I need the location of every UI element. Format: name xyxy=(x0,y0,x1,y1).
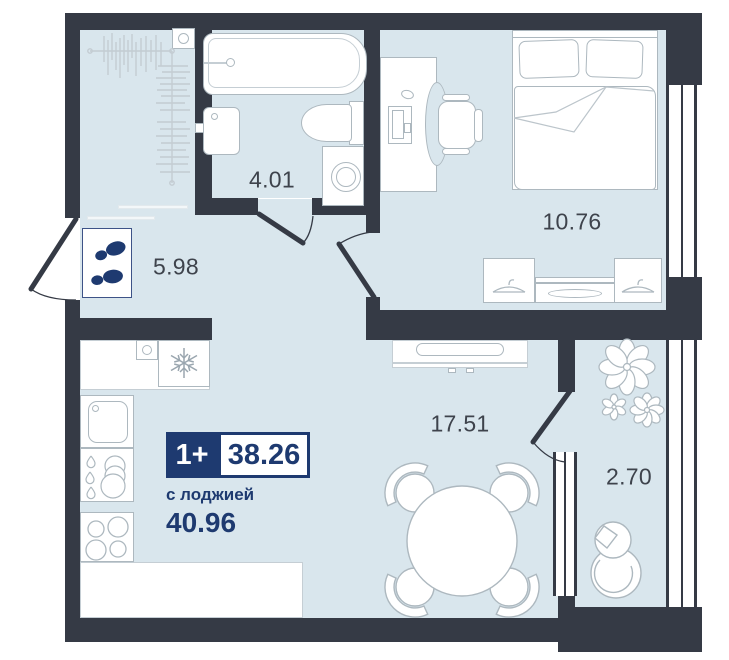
main-area-value: 38.26 xyxy=(218,432,310,478)
toilet-bowl xyxy=(301,104,352,142)
light-fixture xyxy=(172,28,195,49)
bathroom-sink xyxy=(203,107,240,155)
light-fixture-lamp xyxy=(178,33,189,44)
area-badge: 1+ 38.26 с лоджией 40.96 xyxy=(166,432,310,539)
washing-machine-door xyxy=(336,167,356,187)
washing-machine xyxy=(322,146,364,206)
bathtub xyxy=(203,33,367,95)
light-fixture xyxy=(136,340,158,360)
kitchen-counter-bottom xyxy=(80,562,303,618)
light-fixture-lamp xyxy=(142,345,152,355)
wall xyxy=(65,13,702,30)
bathtub-faucet xyxy=(226,58,235,67)
shoe-mat xyxy=(82,228,132,298)
bed-blanket xyxy=(514,86,656,190)
bedroom-window xyxy=(666,85,697,277)
bed-pillow xyxy=(585,39,643,79)
bathroom-door-opening xyxy=(258,199,312,215)
tv-stand-foot xyxy=(448,368,456,373)
desk-monitor-screen xyxy=(392,110,404,139)
entrance-door xyxy=(31,219,76,300)
tv-stand-line xyxy=(393,362,527,364)
wardrobe xyxy=(483,258,535,303)
kitchen-sink-unit xyxy=(80,395,134,448)
total-area-value: 40.96 xyxy=(166,507,310,539)
office-chair-armrest xyxy=(442,148,470,155)
dresser xyxy=(535,277,615,303)
closet-shelf xyxy=(118,205,188,209)
wall xyxy=(366,310,702,340)
room-label-bedroom: 10.76 xyxy=(542,209,601,236)
office-chair-seat xyxy=(438,101,476,149)
wall xyxy=(65,300,80,642)
wall xyxy=(65,318,212,340)
living-balcony-window xyxy=(553,452,577,596)
wall xyxy=(195,198,258,215)
wall xyxy=(65,13,80,218)
wardrobe xyxy=(614,258,662,303)
dishwasher xyxy=(80,448,134,502)
wall xyxy=(666,277,702,310)
wall xyxy=(558,596,575,618)
closet-shelf xyxy=(87,216,155,220)
fridge xyxy=(158,340,210,387)
wall xyxy=(666,30,702,85)
window-pane-divider xyxy=(564,452,566,596)
room-label-hallway: 5.98 xyxy=(153,254,199,281)
office-chair-back xyxy=(474,109,483,142)
bed-pillow xyxy=(518,39,579,79)
balcony-door-opening xyxy=(558,392,575,454)
sink-drain xyxy=(211,113,218,120)
dresser-line xyxy=(536,282,614,284)
wall xyxy=(558,607,702,652)
office-chair-armrest xyxy=(442,94,470,101)
tv xyxy=(416,343,504,356)
floor-plan: 4.01 10.76 5.98 17.51 2.70 1+ 38.26 с ло… xyxy=(0,0,729,660)
desk-monitor-stand xyxy=(404,123,411,133)
room-type-badge: 1+ xyxy=(166,432,218,478)
area-note: с лоджией xyxy=(166,485,310,505)
bedroom-door-opening xyxy=(366,233,380,297)
wall xyxy=(65,618,558,642)
stove xyxy=(80,512,134,562)
room-label-living-kitchen: 17.51 xyxy=(430,411,489,438)
wall xyxy=(558,340,575,392)
tv-stand-foot xyxy=(466,368,474,373)
balcony-window xyxy=(666,340,697,607)
window-pane-divider xyxy=(681,340,683,607)
kitchen-sink-drain xyxy=(92,405,99,412)
room-label-bathroom: 4.01 xyxy=(249,167,295,194)
room-label-balcony: 2.70 xyxy=(606,464,652,491)
passage-floor xyxy=(212,318,366,340)
bathtub-faucet-pipe xyxy=(204,62,228,64)
desk-monitor xyxy=(388,106,412,144)
dresser-handle xyxy=(548,289,602,298)
window-pane-divider xyxy=(681,85,683,277)
closet-floor xyxy=(80,30,195,215)
bed-headboard xyxy=(512,30,658,38)
wall xyxy=(366,198,380,233)
